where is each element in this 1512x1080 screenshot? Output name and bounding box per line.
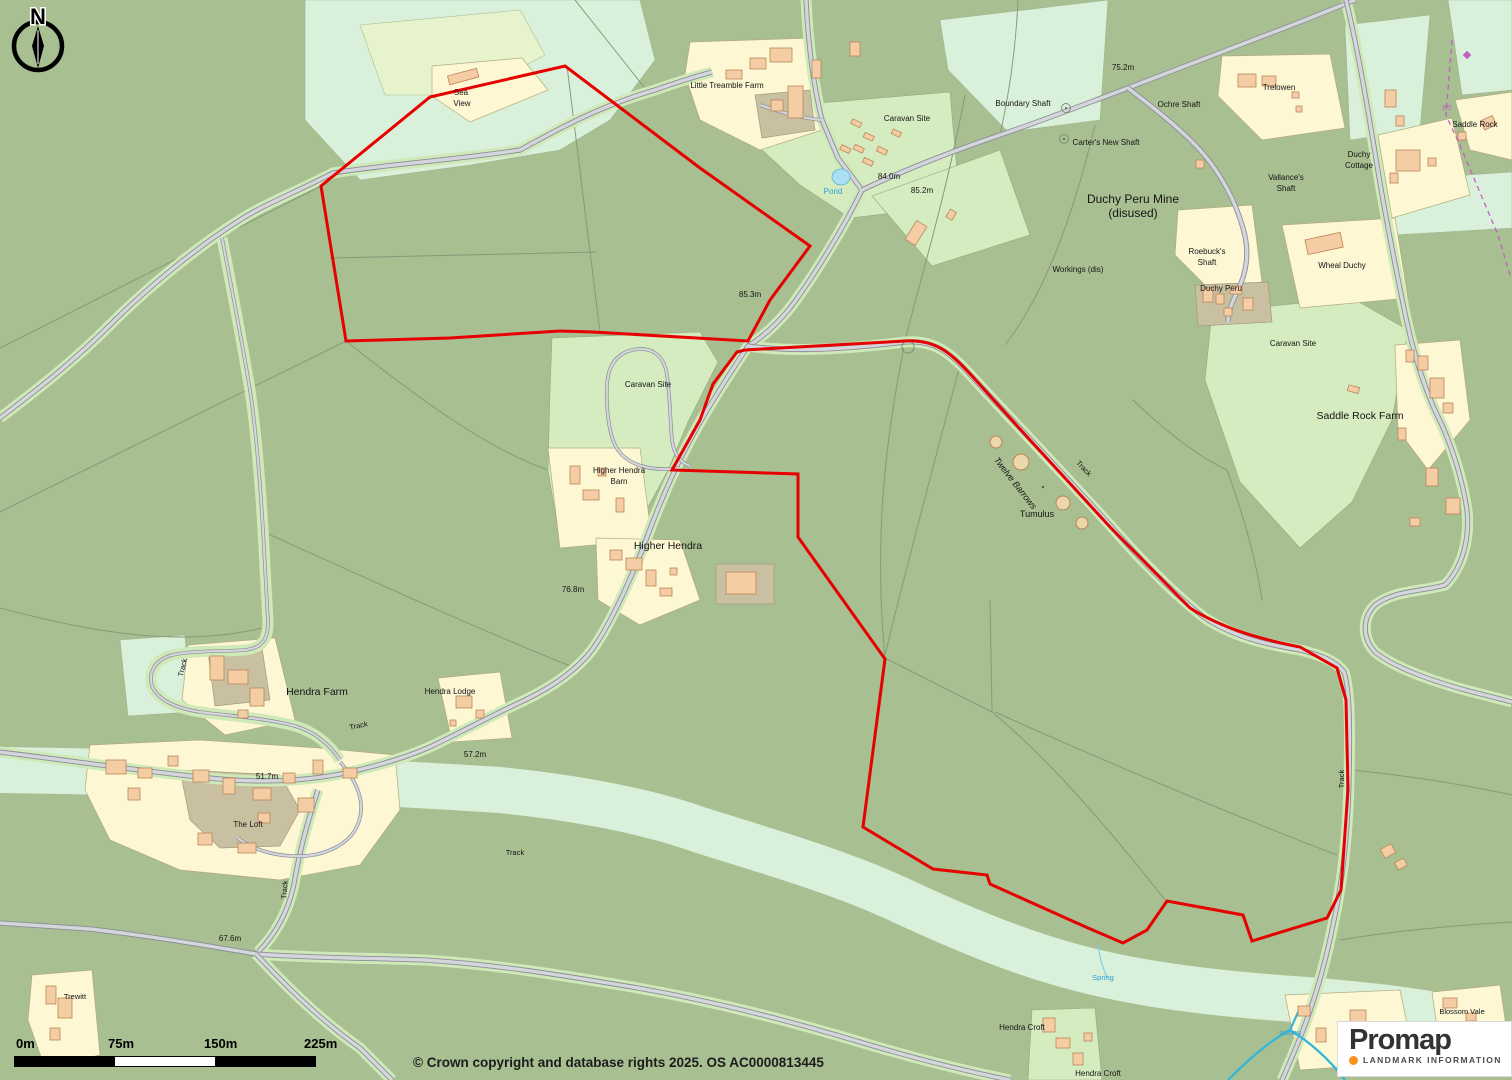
scale-bar: 0m 75m 150m 225m	[14, 1036, 334, 1072]
map-label-hendra-croft: Hendra Croft	[1075, 1069, 1122, 1078]
map-canvas[interactable]: SeaViewLittle Treamble FarmCaravan SiteB…	[0, 0, 1512, 1080]
map-label-pond: Pond	[824, 187, 843, 196]
map-label-trelowen: Trelowen	[1263, 83, 1296, 92]
map-label-boundary-shaft: Boundary Shaft	[995, 99, 1051, 108]
map-label-75-2m: 75.2m	[1112, 63, 1135, 72]
map-label-caravan-site: Caravan Site	[625, 380, 672, 389]
logo-dot-icon	[1349, 1056, 1358, 1065]
map-label-sea: Sea	[454, 88, 469, 97]
copyright-text: © Crown copyright and database rights 20…	[413, 1055, 824, 1070]
map-label-ochre-shaft: Ochre Shaft	[1158, 100, 1201, 109]
map-label-85-2m: 85.2m	[911, 186, 934, 195]
map-label-saddle-rock-farm: Saddle Rock Farm	[1317, 410, 1404, 422]
map-label-carter-s-new-shaft: Carter's New Shaft	[1073, 138, 1141, 147]
map-label-little-treamble-farm: Little Treamble Farm	[690, 81, 764, 90]
map-label-bs: BS	[1442, 105, 1452, 112]
barrow-ring	[1076, 517, 1088, 529]
scale-label-75: 75m	[108, 1036, 134, 1051]
scale-label-225: 225m	[304, 1036, 337, 1051]
map-label-higher-hendra: Higher Hendra	[634, 540, 702, 552]
map-label-saddle-rock: Saddle Rock	[1452, 120, 1498, 129]
map-label-hendra-farm: Hendra Farm	[286, 686, 348, 698]
map-label-hendra-croft: Hendra Croft	[999, 1023, 1046, 1032]
pond	[832, 169, 850, 185]
terrain-layer	[0, 0, 1512, 1080]
map-label-76-8m: 76.8m	[562, 585, 585, 594]
map-label-view: View	[453, 99, 470, 108]
map-label-track: Track	[279, 880, 289, 899]
map-label-duchy: Duchy	[1348, 150, 1371, 159]
map-label-hendra-lodge: Hendra Lodge	[425, 687, 476, 696]
map-label-barn: Barn	[611, 477, 628, 486]
map-label-track: Track	[506, 848, 525, 857]
map-label-duchy-peru: Duchy Peru	[1200, 284, 1242, 293]
map-label-roebuck-s: Roebuck's	[1188, 247, 1225, 256]
scale-label-150: 150m	[204, 1036, 237, 1051]
scale-label-0: 0m	[16, 1036, 35, 1051]
compass-north-letter: N	[30, 6, 46, 29]
landmark-tagline: LANDMARK INFORMATION	[1363, 1055, 1502, 1065]
map-viewport: SeaViewLittle Treamble FarmCaravan SiteB…	[0, 0, 1512, 1080]
map-label-spring: Spring	[1092, 973, 1114, 982]
map-label-trewitt: Trewitt	[64, 992, 87, 1001]
promap-brand-text: Promap	[1349, 1026, 1511, 1054]
map-label-tumulus: Tumulus	[1020, 509, 1055, 519]
map-label-track: Track	[1337, 770, 1346, 789]
map-label-disused: (disused)	[1108, 206, 1157, 220]
map-label-workings-dis: Workings (dis)	[1053, 265, 1104, 274]
compass-rose: N	[8, 6, 72, 78]
map-label-issues: Issues	[1279, 1028, 1301, 1037]
map-label-caravan-site: Caravan Site	[1270, 339, 1317, 348]
barrow-ring	[990, 436, 1002, 448]
promap-logo: Promap LANDMARK INFORMATION	[1337, 1021, 1512, 1077]
map-label-shaft: Shaft	[1198, 258, 1217, 267]
barrow-ring	[1013, 454, 1029, 470]
map-label-cottage: Cottage	[1345, 161, 1374, 170]
map-label-57-2m: 57.2m	[464, 750, 487, 759]
map-label-shaft: Shaft	[1277, 184, 1296, 193]
map-label-the-loft: The Loft	[233, 820, 263, 829]
map-label-vallance-s: Vallance's	[1268, 173, 1304, 182]
barrow-ring	[1056, 496, 1070, 510]
map-label-blossom-vale: Blossom Vale	[1439, 1007, 1484, 1016]
map-label-85-3m: 85.3m	[739, 290, 762, 299]
map-label-51-7m: 51.7m	[256, 772, 279, 781]
map-label-duchy-peru-mine: Duchy Peru Mine	[1087, 192, 1179, 206]
map-label-84-0m: 84.0m	[878, 172, 901, 181]
map-label-higher-hendra: Higher Hendra	[593, 466, 646, 475]
map-label-wheal-duchy: Wheal Duchy	[1318, 261, 1366, 270]
map-label-caravan-site: Caravan Site	[884, 114, 931, 123]
scale-bar-segments	[14, 1056, 316, 1067]
map-label-67-6m: 67.6m	[219, 934, 242, 943]
